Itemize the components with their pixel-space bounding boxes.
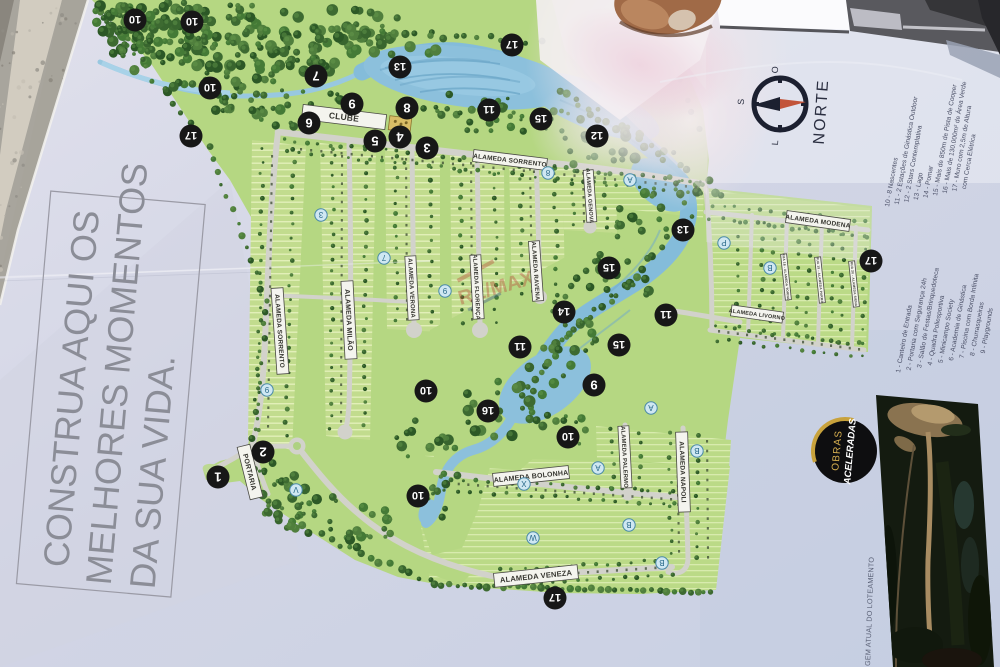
svg-text:8: 8 [545,168,550,177]
svg-text:7: 7 [381,253,386,262]
svg-text:B: B [767,263,772,272]
svg-text:15: 15 [613,338,625,350]
svg-text:10: 10 [186,15,198,27]
svg-text:3: 3 [318,210,323,219]
svg-text:X: X [521,479,527,488]
svg-text:11: 11 [483,103,495,115]
svg-text:4: 4 [396,129,404,144]
svg-text:9: 9 [442,286,447,295]
svg-text:15: 15 [603,261,615,273]
svg-text:11: 11 [660,308,672,320]
svg-text:12: 12 [591,129,603,141]
svg-text:B: B [659,558,664,567]
svg-text:14: 14 [557,305,570,317]
svg-text:A: A [595,463,601,472]
svg-text:W: W [529,533,537,542]
svg-text:9: 9 [590,377,597,392]
svg-text:A: A [648,403,654,412]
svg-text:V: V [293,485,299,494]
svg-text:10: 10 [129,13,141,25]
svg-text:A: A [627,175,633,184]
svg-text:16: 16 [482,404,494,416]
svg-text:B: B [694,446,699,455]
svg-text:17: 17 [865,254,877,266]
svg-text:3: 3 [423,140,430,155]
svg-text:7: 7 [312,68,319,83]
svg-text:S: S [736,98,746,105]
svg-text:5: 5 [371,133,378,148]
svg-text:L: L [770,140,780,146]
svg-text:13: 13 [394,60,406,72]
svg-text:15: 15 [535,112,547,124]
svg-text:10: 10 [420,384,432,396]
svg-text:13: 13 [677,223,689,235]
svg-text:6: 6 [305,115,312,130]
svg-text:17: 17 [549,591,561,603]
svg-text:17: 17 [185,129,197,141]
svg-text:17: 17 [506,38,518,50]
svg-text:B: B [626,520,631,529]
svg-text:10: 10 [562,430,574,442]
svg-text:1: 1 [214,469,221,484]
svg-text:8: 8 [403,100,410,115]
svg-text:2: 2 [259,444,266,459]
svg-text:9: 9 [264,385,269,394]
svg-text:11: 11 [514,340,526,352]
svg-text:P: P [721,238,726,247]
svg-text:O: O [770,66,780,74]
svg-text:10: 10 [204,81,216,93]
svg-text:9: 9 [348,96,355,111]
svg-text:10: 10 [412,489,424,501]
